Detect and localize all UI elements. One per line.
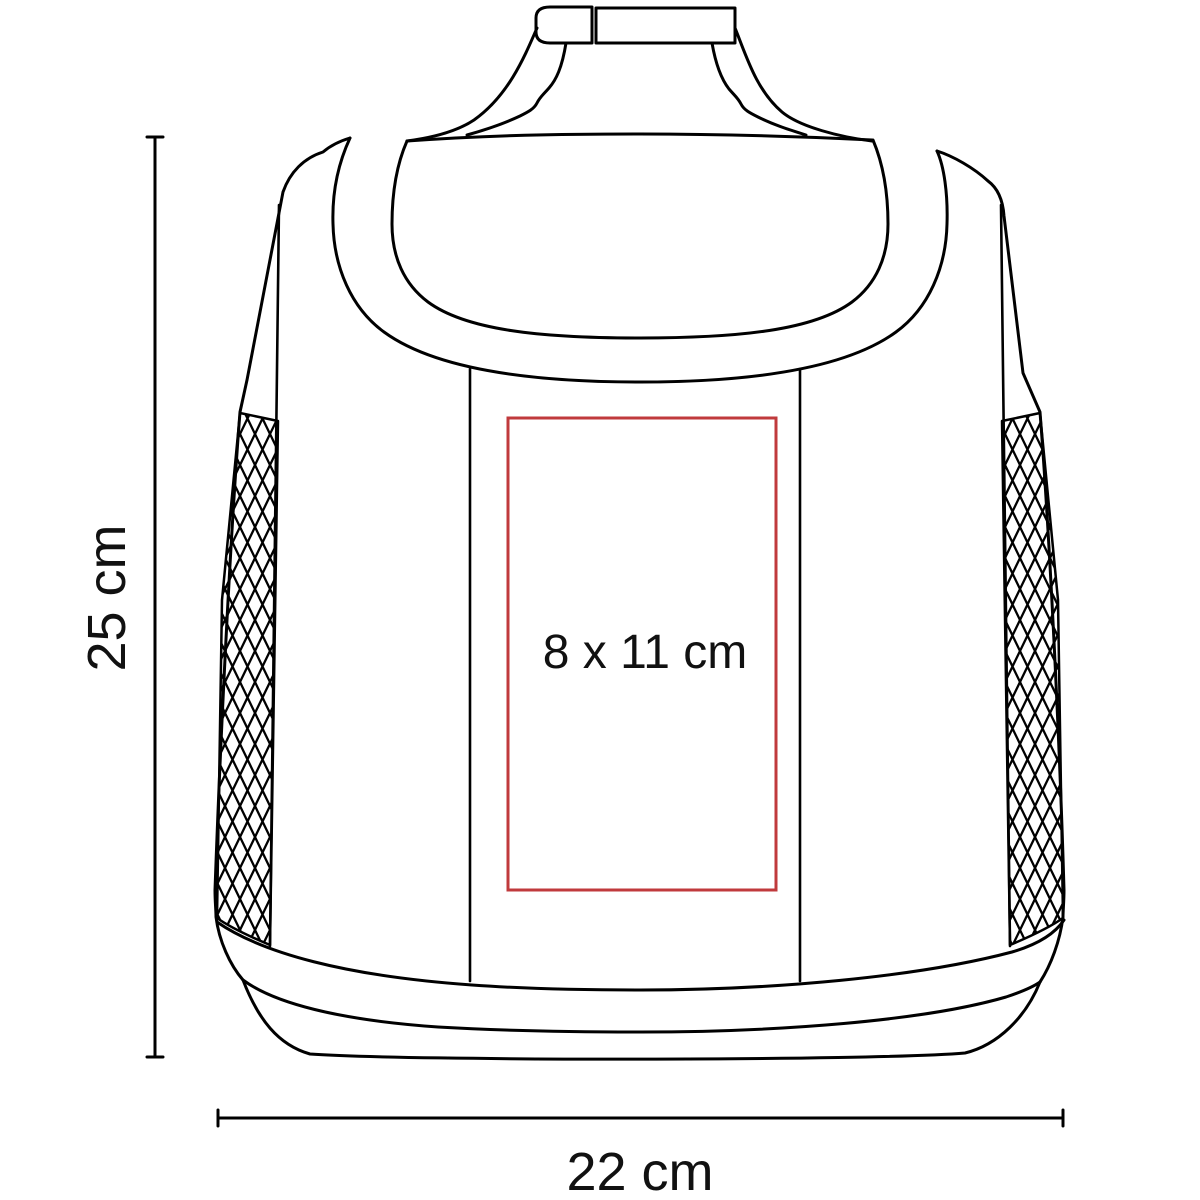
width-dimension-line [218,1110,1063,1126]
clip-right-piece [596,8,735,43]
base-band-upper-line [217,920,1064,990]
neck-outer-left-line [407,28,537,141]
product-dimension-diagram: 8 x 11 cm 25 cm 22 cm [0,0,1200,1200]
handle-inner-curve [392,140,888,338]
height-dimension-label: 25 cm [77,524,137,671]
mesh-panel-right [1002,413,1063,945]
neck-inner-right-line [712,43,806,135]
clip-left-piece [536,7,592,43]
handle-outer-curve [333,138,947,382]
height-dimension-line [147,137,163,1057]
bag-line-art [215,7,1064,1059]
base-band-lower-line [243,980,1040,1032]
width-dimension-label: 22 cm [566,1142,713,1200]
print-area-label: 8 x 11 cm [543,626,748,679]
mesh-panel-left [217,413,278,945]
neck-outer-right-line [735,28,872,141]
neck-inner-left-line [467,43,566,135]
bag-diagram-canvas: 8 x 11 cm 25 cm 22 cm [0,0,1200,1200]
